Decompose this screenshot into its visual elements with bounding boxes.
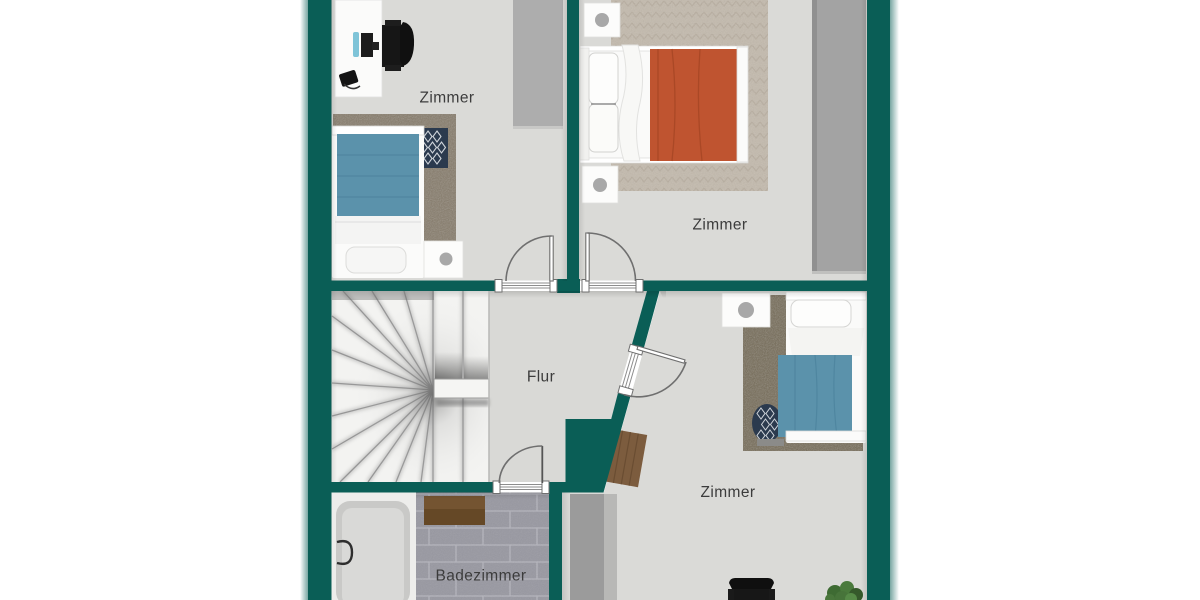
svg-text:Zimmer: Zimmer [701,484,756,501]
svg-text:Zimmer: Zimmer [693,217,748,234]
svg-text:Zimmer: Zimmer [420,90,475,107]
svg-text:Badezimmer: Badezimmer [436,568,527,585]
svg-text:Flur: Flur [527,369,555,386]
